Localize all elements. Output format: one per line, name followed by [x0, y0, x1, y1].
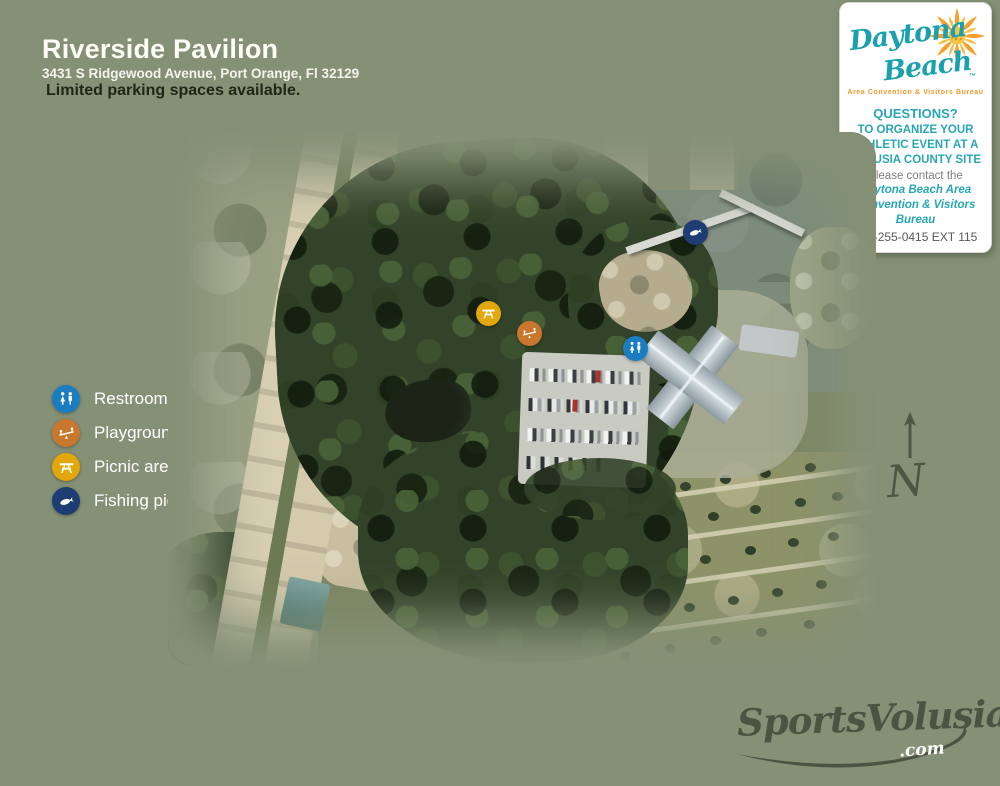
legend-item-playground: Playground: [52, 419, 182, 447]
watermark-brand: SportsVolusia: [736, 691, 1000, 744]
daytona-beach-logo: Daytona Beach ™ Area Convention & Visito…: [847, 9, 984, 101]
restrooms-icon: [52, 385, 80, 413]
playground-marker: [517, 321, 542, 346]
venue-address: 3431 S Ridgewood Avenue, Port Orange, Fl…: [42, 66, 359, 81]
picnic-area-marker: [476, 301, 501, 326]
tree-shadows: [524, 458, 676, 520]
legend-label: Restrooms: [94, 389, 176, 409]
red-car: [572, 400, 577, 412]
legend-item-fishing: Fishing pier: [52, 487, 182, 515]
aerial-photo: [168, 132, 876, 666]
parked-car-row: [528, 398, 640, 415]
card-questions: QUESTIONS?: [847, 106, 984, 121]
legend-item-picnic: Picnic area: [52, 453, 182, 481]
north-compass: N: [885, 412, 939, 512]
map-legend: Restrooms Playground Picnic area: [52, 385, 182, 521]
parking-note: Limited parking spaces available.: [46, 82, 300, 100]
legend-label: Picnic area: [94, 457, 178, 477]
parked-car-row: [527, 428, 639, 445]
sportsvolusia-watermark: SportsVolusia .com: [731, 694, 987, 778]
marsh-sandbar: [790, 227, 876, 349]
page-title: Riverside Pavilion: [42, 34, 359, 65]
fishing-pier-marker: [683, 220, 708, 245]
north-arrow-icon: [885, 412, 939, 460]
watermark-suffix: .com: [898, 738, 945, 761]
trademark-symbol: ™: [969, 73, 976, 80]
playground-icon: [52, 419, 80, 447]
legend-item-restrooms: Restrooms: [52, 385, 182, 413]
picnic-table-icon: [52, 453, 80, 481]
fish-icon: [52, 487, 80, 515]
restrooms-marker: [623, 336, 648, 361]
page-header: Riverside Pavilion 3431 S Ridgewood Aven…: [42, 34, 359, 81]
logo-word-beach: Beach: [881, 46, 973, 88]
north-letter: N: [885, 455, 927, 509]
logo-subtitle: Area Convention & Visitors Bureau: [847, 89, 984, 96]
red-car: [595, 370, 600, 382]
